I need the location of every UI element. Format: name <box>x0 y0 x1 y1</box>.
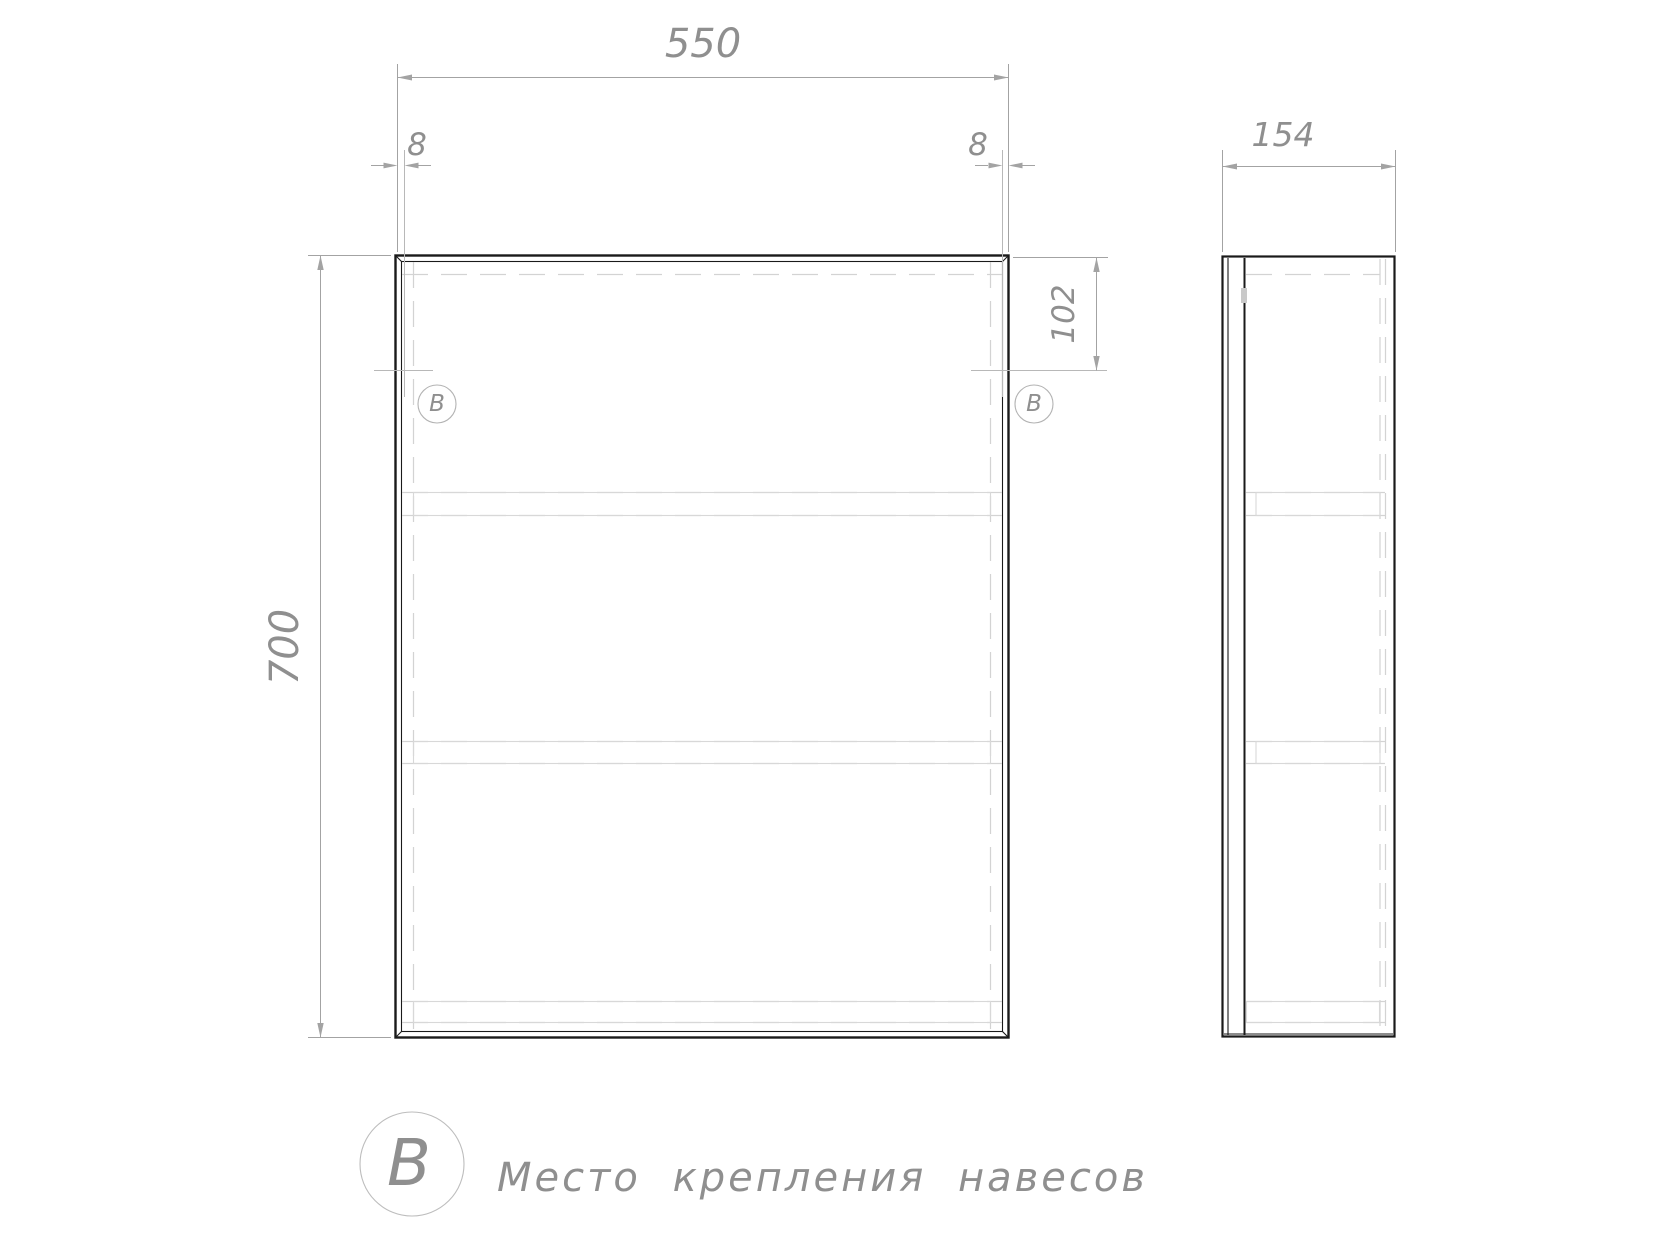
shelf-2 <box>414 742 991 764</box>
front-view: В В <box>374 150 1107 1038</box>
dim-154-label: 154 <box>1252 115 1315 154</box>
side-shelf-1 <box>1256 493 1380 516</box>
hinge-marker <box>1241 288 1247 303</box>
dim-700: 700 <box>262 256 391 1038</box>
dim-8-right-label: 8 <box>968 127 988 163</box>
dim-550: 550 <box>398 21 1009 252</box>
cabinet-drawing: В В 550 8 8 102 <box>0 0 1680 1260</box>
mount-cross-right <box>971 150 1107 397</box>
dim-102-label: 102 <box>1046 284 1082 343</box>
mount-marker-right-label: В <box>1026 391 1042 417</box>
mirror-inner-edge <box>402 262 1003 1032</box>
mount-cross-left <box>374 150 433 397</box>
dim-8-right: 8 <box>968 127 1035 168</box>
dim-8-left: 8 <box>371 127 431 168</box>
dim-700-label: 700 <box>262 609 308 685</box>
front-outline <box>396 256 1009 1038</box>
dim-154: 154 <box>1223 115 1396 252</box>
legend-marker: В <box>387 1127 431 1201</box>
dim-102: 102 <box>1013 258 1108 371</box>
bottom-panel <box>414 1002 991 1023</box>
mount-marker-left: В <box>418 385 456 423</box>
technical-drawing-page: В В 550 8 8 102 <box>0 0 1680 1260</box>
mount-marker-left-label: В <box>429 391 445 417</box>
side-shelf-2 <box>1256 742 1380 764</box>
dim-8-left-label: 8 <box>407 127 427 163</box>
mount-marker-right: В <box>1015 385 1053 423</box>
side-bottom-panel <box>1247 1002 1380 1023</box>
shelf-1 <box>414 493 991 516</box>
dim-550-label: 550 <box>665 21 741 67</box>
side-view <box>1223 257 1395 1037</box>
legend: В Место крепления навесов <box>360 1112 1148 1216</box>
legend-label: Место крепления навесов <box>497 1155 1148 1201</box>
side-outline <box>1223 257 1395 1037</box>
